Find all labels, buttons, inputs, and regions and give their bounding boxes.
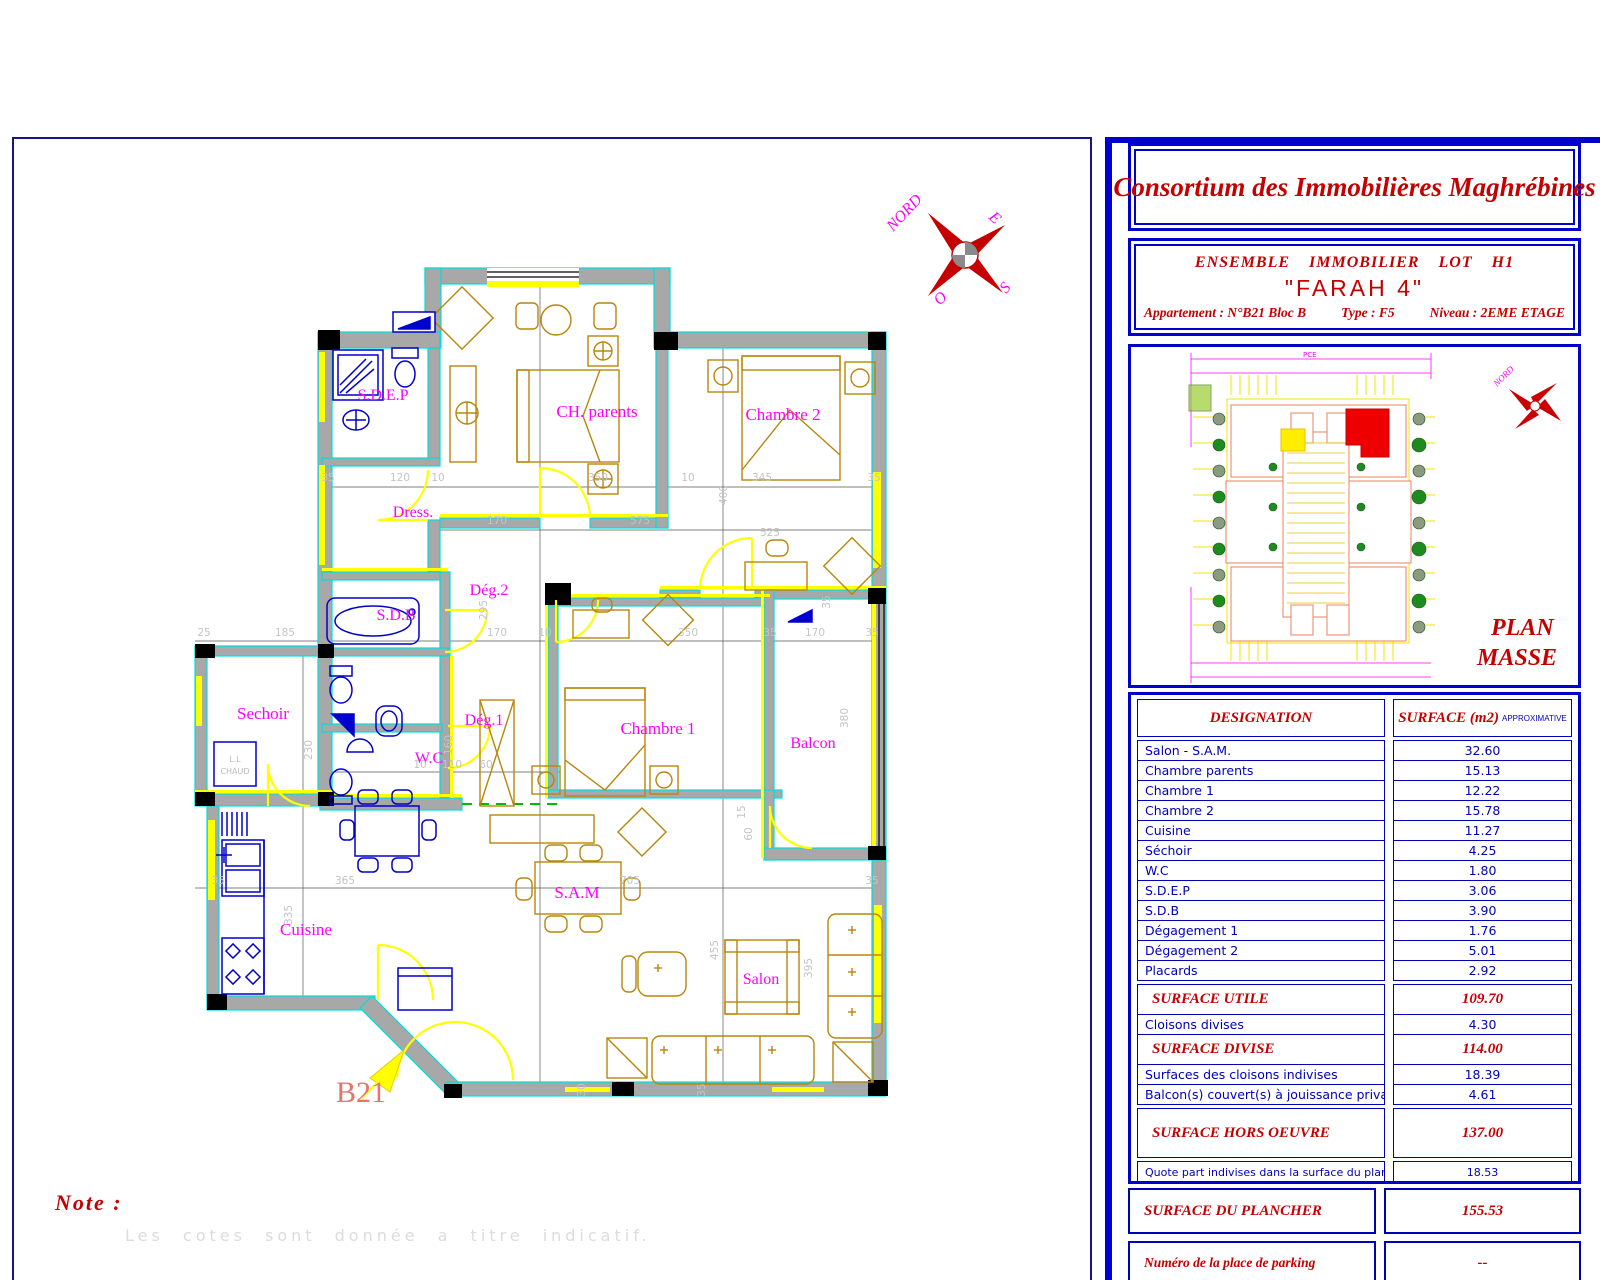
dimension-label: 10 [413,759,426,771]
dimension-label: 35 [763,627,776,639]
dimension-label: 35 [821,595,833,608]
unit-label: B21 [336,1076,386,1109]
note-title: Note : [55,1190,123,1215]
dimension-label: 525 [760,527,780,539]
dimension-label: 350 [678,627,698,639]
parking-value: -- [1384,1241,1581,1280]
room-label-s-a-m: S.A.M [554,883,599,902]
floor-plan-svg: L.L CHAUD NORD E S O B21 S.D.E.PDress.S.… [0,130,1090,1280]
site-plan-svg: PCE [1131,347,1578,685]
plan-masse-title-1: PLAN [1490,615,1555,641]
plancher-row: SURFACE DU PLANCHER 155.53 [1128,1188,1581,1234]
dimension-label: 10 [431,472,444,484]
dimension-label: 35 [696,1083,708,1096]
niveau-info: Niveau : 2EME ETAGE [1430,305,1565,321]
table-row: Dégagement 2 5.01 [1137,940,1572,961]
table-row: Chambre 1 12.22 [1137,780,1572,801]
stair-core [1281,429,1305,451]
summary-rows: SURFACE UTILE 109.70 Cloisons divises 4.… [1137,984,1572,1184]
table-row: Dégagement 1 1.76 [1137,920,1572,941]
room-label-chambre-1: Chambre 1 [620,719,695,738]
table-row: Quote part indivises dans la surface du … [1137,1161,1572,1184]
dimension-label: 110 [442,759,462,771]
dimension-label: 35 [865,875,878,887]
table-row: SURFACE HORS OEUVRE 137.00 [1137,1108,1572,1158]
table-row: S.D.B 3.90 [1137,900,1572,921]
project-line1: ENSEMBLE IMMOBILIER LOT H1 [1195,254,1514,272]
table-row: Salon - S.A.M. 32.60 [1137,740,1572,761]
dimension-label: 60 [743,827,755,840]
room-label-balcon: Balcon [790,735,835,752]
table-row: W.C 1.80 [1137,860,1572,881]
parking-row: Numéro de la place de parking -- [1128,1241,1581,1280]
table-row: Surfaces des cloisons indivises 18.39 [1137,1064,1572,1085]
table-row: Chambre parents 15.13 [1137,760,1572,781]
fixtures-blue [214,312,812,1010]
room-label-s-d-b: S.D.B [376,607,415,624]
table-row: Séchoir 4.25 [1137,840,1572,861]
room-label-ch-parents: CH. parents [556,402,637,421]
table-row: Cuisine 11.27 [1137,820,1572,841]
mini-compass: NORD [1491,364,1561,429]
room-label-dress-: Dress. [393,504,433,521]
dimension-label: 380 [839,708,851,728]
dimension-label: 35 [321,472,334,484]
table-row: Cloisons divises 4.30 [1137,1014,1572,1035]
surface-table: DESIGNATION SURFACE (m2) APPROXIMATIVE S… [1128,692,1581,1184]
company-box: Consortium des Immobilières Maghrébines [1128,143,1581,231]
dimension-label: 705 [620,875,640,887]
dimension-label: 295 [478,600,490,620]
dimension-label: 60 [479,759,492,771]
columns [195,330,888,1098]
project-box: ENSEMBLE IMMOBILIER LOT H1 "FARAH 4" App… [1128,238,1581,336]
dimension-label: 160 [443,735,455,755]
project-name: "FARAH 4" [1285,275,1424,302]
apartment-info: Appartement : N°B21 Bloc B [1144,305,1306,321]
dimension-label: 170 [805,627,825,639]
dimension-label: 185 [275,627,295,639]
dimension-label: 15 [736,805,748,818]
plan-masse-title-2: MASSE [1476,645,1557,671]
unit-entrance-marker: B21 [336,1050,404,1109]
plancher-value: 155.53 [1384,1188,1581,1234]
dimension-label: 170 [487,627,507,639]
compass-n-label: NORD [883,191,926,236]
designation-header: DESIGNATION [1137,699,1385,737]
dimension-lines [195,268,886,1094]
dimension-label: 25 [197,627,210,639]
company-name: Consortium des Immobilières Maghrébines [1113,172,1595,203]
room-rows: Salon - S.A.M. 32.60 Chambre parents 15.… [1137,740,1572,981]
dimension-label: 455 [709,940,721,960]
dimension-label: 575 [630,515,650,527]
compass-e-label: E [985,208,1005,228]
table-row: SURFACE UTILE 109.70 [1137,984,1572,1015]
drawing-sheet: L.L CHAUD NORD E S O B21 S.D.E.PDress.S.… [0,0,1600,1280]
table-row: S.D.E.P 3.06 [1137,880,1572,901]
washer-label-1: L.L [229,755,241,764]
hedge [1189,385,1211,411]
compass-s-label: S [996,279,1014,296]
table-row: SURFACE DIVISE 114.00 [1137,1034,1572,1065]
washer-label-2: CHAUD [220,767,249,776]
dimension-label: 350 [588,472,608,484]
note-text: Les cotes sont donnée a titre indicatif. [125,1226,955,1245]
title-block-panel: Consortium des Immobilières Maghrébines … [1105,137,1600,1280]
approx-note: APPROXIMATIVE [1502,714,1567,723]
dimension-label: 120 [390,472,410,484]
compass-rose: NORD E S O [883,191,1015,309]
type-info: Type : F5 [1341,305,1394,321]
room-label-d-g-1: Dég.1 [465,712,504,729]
table-header-row: DESIGNATION SURFACE (m2) APPROXIMATIVE [1137,699,1572,741]
mini-compass-label: NORD [1491,364,1516,389]
plancher-label: SURFACE DU PLANCHER [1128,1188,1376,1234]
room-label-d-g-2: Dég.2 [470,582,509,599]
room-label-sechoir: Sechoir [237,704,289,723]
parking-label: Numéro de la place de parking [1128,1241,1376,1280]
room-label-s-d-e-p: S.D.E.P [357,387,408,404]
room-label-salon: Salon [743,971,779,988]
table-row: Chambre 2 15.78 [1137,800,1572,821]
table-row: Placards 2.92 [1137,960,1572,981]
dimension-label: 10 [681,472,694,484]
dimension-label: 10 [538,627,551,639]
dimension-label: 35 [865,627,878,639]
room-label-chambre-2: Chambre 2 [745,405,820,424]
dimension-label: 335 [283,905,295,925]
walls [195,268,886,1096]
dimension-label: 230 [303,740,315,760]
surface-header: SURFACE (m2) APPROXIMATIVE [1393,699,1572,737]
dimension-label: 35 [211,875,224,887]
dimension-label: 365 [335,875,355,887]
plan-masse-box: PCE [1128,344,1581,688]
dimension-label: 345 [752,472,772,484]
dimension-label: 35 [867,472,880,484]
window-accents [195,268,886,1092]
pce-label: PCE [1303,351,1317,359]
dimension-label: 30 [576,1083,588,1096]
dimension-label: 170 [487,515,507,527]
dimension-label: 400 [718,485,730,505]
note: Note : Les cotes sont donnée a titre ind… [55,1190,955,1245]
table-row: Balcon(s) couvert(s) à jouissance privat… [1137,1084,1572,1105]
dimension-label: 395 [803,958,815,978]
